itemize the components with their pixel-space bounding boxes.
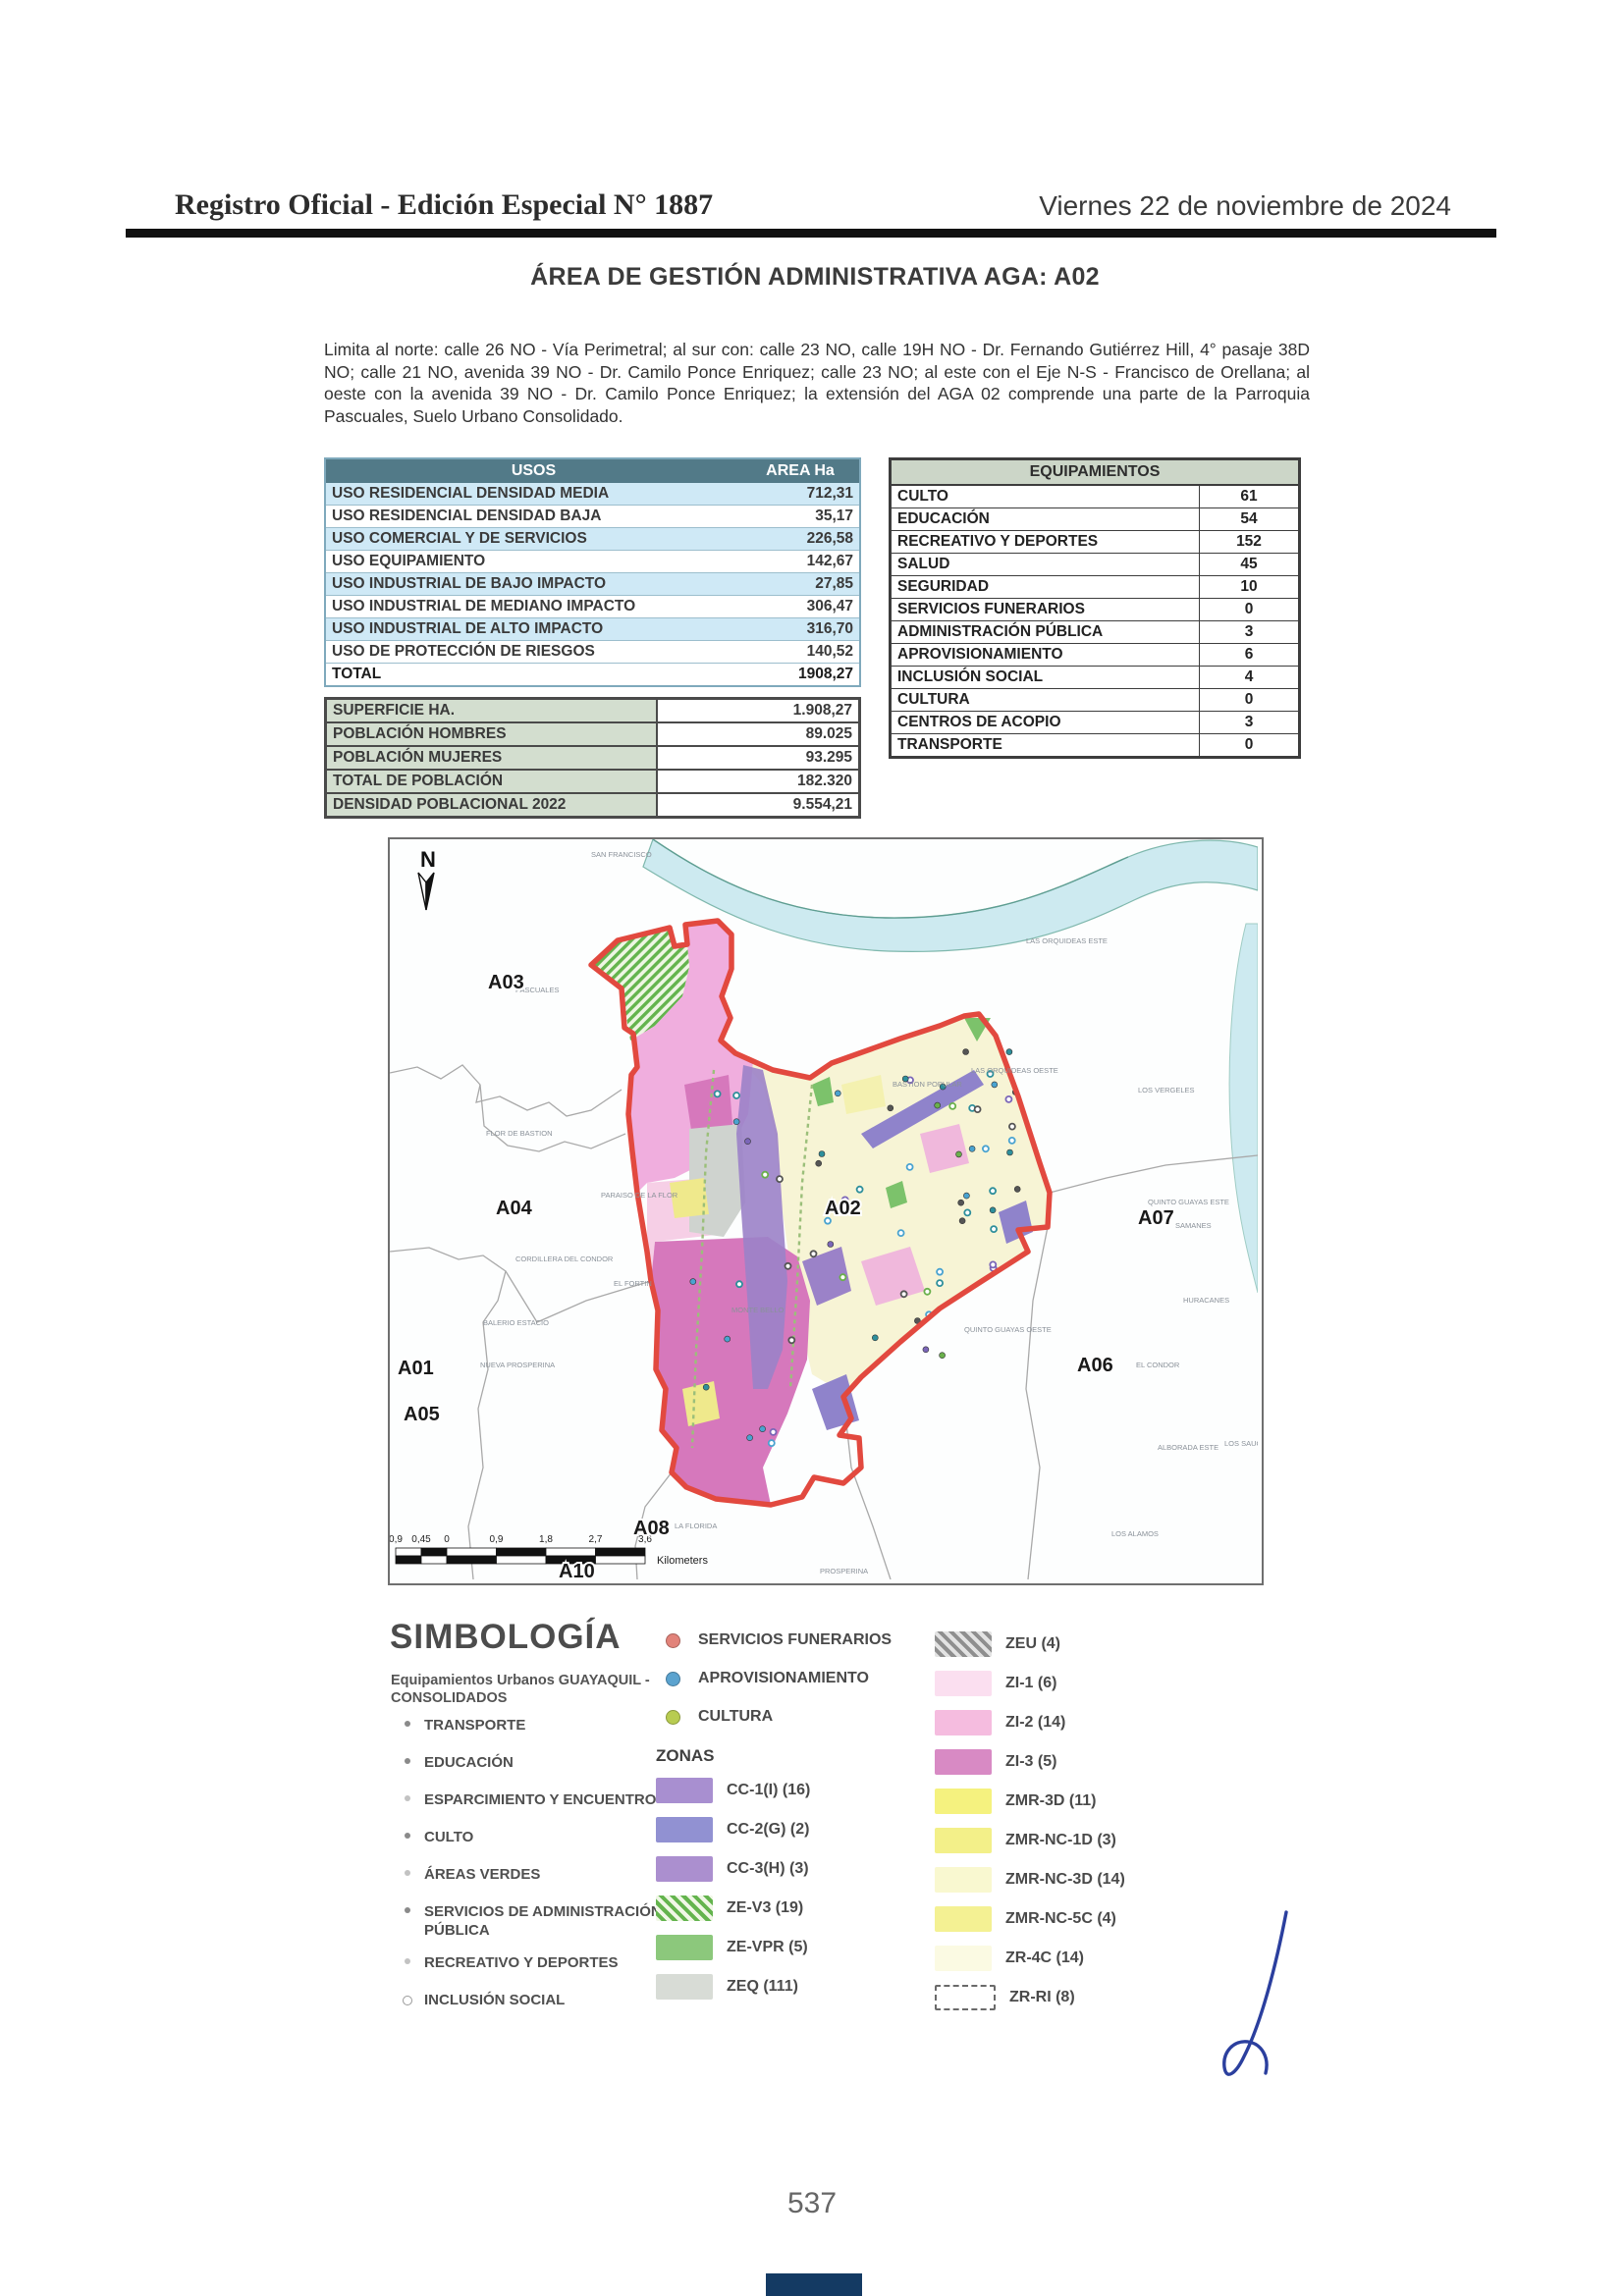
uso-value: 306,47 (741, 596, 860, 618)
table-row: EDUCACIÓN54 (891, 508, 1300, 531)
esparcimiento-y-encuentro-icon (391, 1790, 424, 1801)
equipment-dot (935, 1102, 941, 1108)
resumen-label: POBLACIÓN MUJERES (326, 746, 657, 770)
usos-total-row: TOTAL1908,27 (325, 664, 860, 687)
place-label: LOS VERGELES (1138, 1086, 1195, 1095)
place-label: LAS ORQUIDEAS ESTE (1026, 936, 1108, 945)
legend-zona-item: ZR-RI (8) (935, 1985, 1249, 2010)
equipment-dot (736, 1281, 742, 1287)
legend-zona-item: CC-3(H) (3) (656, 1856, 950, 1882)
equipment-dot (745, 1139, 751, 1145)
equip-value: 54 (1200, 508, 1300, 531)
equipment-dot (901, 1291, 907, 1297)
equip-label: CENTROS DE ACOPIO (891, 712, 1200, 734)
place-label: QUINTO GUAYAS OESTE (964, 1325, 1052, 1334)
culto-icon (391, 1828, 424, 1839)
equipment-dot (703, 1384, 709, 1390)
equipment-dot (760, 1426, 766, 1432)
legend-zona-item: ZMR-NC-1D (3) (935, 1828, 1249, 1853)
table-row: SERVICIOS FUNERARIOS0 (891, 599, 1300, 621)
place-label: PARAISO DE LA FLOR (601, 1191, 678, 1200)
table-row: CULTO61 (891, 485, 1300, 508)
equipment-dot (1006, 1049, 1012, 1055)
equipment-dot (992, 1082, 998, 1088)
equip-label: APROVISIONAMIENTO (891, 644, 1200, 667)
resumen-value: 93.295 (657, 746, 860, 770)
equipment-dot (990, 1261, 996, 1267)
legend-label: ZI-2 (14) (1005, 1714, 1065, 1732)
equip-label: ADMINISTRACIÓN PÚBLICA (891, 621, 1200, 644)
legend-zonas-header: ZONAS (656, 1746, 950, 1766)
aga-zone-label: A06 (1077, 1355, 1113, 1376)
table-row: ADMINISTRACIÓN PÚBLICA3 (891, 621, 1300, 644)
legend-equip-item: ÁREAS VERDES (391, 1865, 685, 1889)
zona-swatch (935, 1906, 992, 1932)
aga-zone-label: A04 (496, 1198, 533, 1219)
zona-swatch (656, 1856, 713, 1882)
equipment-dot (898, 1230, 904, 1236)
uso-value: 712,31 (741, 483, 860, 506)
table-row: USO DE PROTECCIÓN DE RIESGOS140,52 (325, 641, 860, 664)
zona-swatch (656, 1896, 713, 1921)
resumen-value: 89.025 (657, 722, 860, 746)
point-marker-icon (666, 1633, 680, 1648)
legend-title: SIMBOLOGÍA (390, 1618, 622, 1657)
table-row: POBLACIÓN HOMBRES89.025 (326, 722, 860, 746)
equip-value: 6 (1200, 644, 1300, 667)
equipment-dot (816, 1160, 822, 1166)
inclusi-n-social-icon (391, 1991, 424, 2005)
equipment-dot (811, 1251, 817, 1256)
equip-label: TRANSPORTE (891, 734, 1200, 758)
equipment-dot (1007, 1149, 1013, 1155)
zona-swatch (935, 1946, 992, 1971)
legend-label: TRANSPORTE (424, 1716, 525, 1735)
legend-label: INCLUSIÓN SOCIAL (424, 1991, 565, 2009)
servicios-de-administraci-n-p-blica-icon (391, 1902, 424, 1913)
uso-value: 316,70 (741, 618, 860, 641)
legend-label: ZMR-NC-1D (3) (1005, 1832, 1116, 1849)
uso-label: USO RESIDENCIAL DENSIDAD BAJA (325, 506, 741, 528)
equipment-dot (715, 1091, 721, 1096)
equip-label: CULTO (891, 485, 1200, 508)
equipment-dot (990, 1188, 996, 1194)
uso-value: 27,85 (741, 573, 860, 596)
scale-tick: 0,9 (490, 1534, 504, 1545)
legend-equip-item: RECREATIVO Y DEPORTES (391, 1953, 685, 1977)
uso-value: 226,58 (741, 528, 860, 551)
uso-label: USO EQUIPAMIENTO (325, 551, 741, 573)
place-label: FLOR DE BASTION (486, 1129, 553, 1138)
legend-label: ZE-VPR (5) (727, 1939, 808, 1956)
zona-swatch (935, 1749, 992, 1775)
legend-zona-item: ZEU (4) (935, 1631, 1249, 1657)
equipment-dot (923, 1347, 929, 1353)
table-row: SALUD45 (891, 554, 1300, 576)
equip-value: 3 (1200, 621, 1300, 644)
equipment-dot (762, 1172, 768, 1178)
legend-zona-item: ZEQ (111) (656, 1974, 950, 2000)
equipment-dot (963, 1193, 969, 1199)
legend-zona-item: ZE-V3 (19) (656, 1896, 950, 1921)
zone-a02 (591, 921, 1050, 1505)
equipment-dot (733, 1093, 739, 1098)
table-row: USO RESIDENCIAL DENSIDAD MEDIA712,31 (325, 483, 860, 506)
equipment-dot (690, 1279, 696, 1285)
equipment-dot (990, 1207, 996, 1213)
equipment-dot (991, 1226, 997, 1232)
legend-label: ZI-3 (5) (1005, 1753, 1056, 1771)
equipment-dot (839, 1274, 845, 1280)
legend-zona-item: ZR-4C (14) (935, 1946, 1249, 1971)
legend-zona-item: ZMR-NC-5C (4) (935, 1906, 1249, 1932)
zona-swatch (656, 1935, 713, 1960)
resumen-label: TOTAL DE POBLACIÓN (326, 770, 657, 793)
legend-zona-item: ZE-VPR (5) (656, 1935, 950, 1960)
legend-equip-item: SERVICIOS DE ADMINISTRACIÓN PÚBLICA (391, 1902, 685, 1940)
equip-label: SERVICIOS FUNERARIOS (891, 599, 1200, 621)
scale-unit: Kilometers (657, 1555, 708, 1567)
equipamientos-header: EQUIPAMIENTOS (891, 459, 1300, 486)
legend-label: ZMR-NC-5C (4) (1005, 1910, 1116, 1928)
legend-equip-column: TRANSPORTEEDUCACIÓNESPARCIMIENTO Y ENCUE… (391, 1716, 685, 2028)
legend-subtitle: Equipamientos Urbanos GUAYAQUIL - CONSOL… (391, 1672, 685, 1707)
legend-label: ZE-V3 (19) (727, 1899, 803, 1917)
equipment-dot (937, 1280, 943, 1286)
transporte-icon (391, 1716, 424, 1727)
place-label: LA FLORIDA (675, 1522, 717, 1530)
table-row: DENSIDAD POBLACIONAL 20229.554,21 (326, 793, 860, 818)
footer-navy-block (766, 2273, 862, 2296)
legend-zona-item: ZMR-NC-3D (14) (935, 1867, 1249, 1893)
resumen-value: 9.554,21 (657, 793, 860, 818)
scale-tick: 0 (444, 1534, 450, 1545)
aga-map-svg: N 0,90,4500,91,82,73,6Kilometers SAN FRA… (390, 839, 1258, 1579)
place-label: LAS ORQUIDEAS OESTE (971, 1066, 1058, 1075)
equip-label: EDUCACIÓN (891, 508, 1200, 531)
place-label: LOS SAUCES (1224, 1439, 1258, 1448)
legend-label: ZR-4C (14) (1005, 1949, 1084, 1967)
scale-tick: 0,45 (411, 1534, 431, 1545)
equip-label: SEGURIDAD (891, 576, 1200, 599)
place-label: SAMANES (1175, 1221, 1212, 1230)
equipment-dot (1005, 1096, 1011, 1102)
place-label: BASTION POPULAR (893, 1080, 962, 1089)
table-row: USO INDUSTRIAL DE BAJO IMPACTO27,85 (325, 573, 860, 596)
usos-header-usos: USOS (325, 458, 741, 483)
legend-point-item: CULTURA (656, 1708, 950, 1726)
table-row: CULTURA0 (891, 689, 1300, 712)
legend-zona-item: ZI-2 (14) (935, 1710, 1249, 1735)
uso-label: USO INDUSTRIAL DE BAJO IMPACTO (325, 573, 741, 596)
svg-text:N: N (420, 847, 436, 872)
equipment-dot (769, 1440, 775, 1446)
equipment-dot (964, 1209, 970, 1215)
zona-swatch (935, 1867, 992, 1893)
usos-table: USOS AREA Ha USO RESIDENCIAL DENSIDAD ME… (324, 457, 861, 687)
equipamientos-table: EQUIPAMIENTOS CULTO61EDUCACIÓN54RECREATI… (889, 457, 1301, 759)
legend-zona-item: CC-1(I) (16) (656, 1778, 950, 1803)
equip-value: 61 (1200, 485, 1300, 508)
table-row: SEGURIDAD10 (891, 576, 1300, 599)
legend-zona-item: ZMR-3D (11) (935, 1789, 1249, 1814)
equipment-dot (785, 1263, 791, 1269)
equip-value: 0 (1200, 689, 1300, 712)
-reas-verdes-icon (391, 1865, 424, 1876)
legend-zona-item: ZI-3 (5) (935, 1749, 1249, 1775)
table-row: INCLUSIÓN SOCIAL4 (891, 667, 1300, 689)
uso-label: USO COMERCIAL Y DE SERVICIOS (325, 528, 741, 551)
equipment-dot (963, 1049, 969, 1055)
aga-zone-label: A02 (825, 1198, 861, 1219)
equipment-dot (956, 1151, 962, 1157)
place-label: QUINTO GUAYAS ESTE (1148, 1198, 1229, 1206)
place-label: CORDILLERA DEL CONDOR (515, 1255, 614, 1263)
equipment-dot (888, 1105, 893, 1111)
legend-label: ZEU (4) (1005, 1635, 1060, 1653)
place-label: EL CONDOR (1136, 1361, 1180, 1369)
total-value: 1908,27 (741, 664, 860, 687)
legend-label: CC-3(H) (3) (727, 1860, 809, 1878)
equipment-dot (983, 1146, 989, 1151)
equipment-dot (949, 1103, 955, 1109)
legend-equip-item: EDUCACIÓN (391, 1753, 685, 1777)
equipment-dot (828, 1242, 834, 1248)
equipment-dot (924, 1289, 930, 1295)
uso-value: 140,52 (741, 641, 860, 664)
legend-zona-item: CC-2(G) (2) (656, 1817, 950, 1842)
point-marker-icon (666, 1672, 680, 1686)
educaci-n-icon (391, 1753, 424, 1764)
zona-swatch (935, 1631, 992, 1657)
legend-label: ZR-RI (8) (1009, 1989, 1075, 2006)
equipment-dot (958, 1200, 964, 1205)
equipment-dot (1009, 1138, 1015, 1144)
equipment-dot (1009, 1124, 1015, 1130)
uso-value: 142,67 (741, 551, 860, 573)
zona-swatch (935, 1789, 992, 1814)
equipamientos-table-body: CULTO61EDUCACIÓN54RECREATIVO Y DEPORTES1… (891, 485, 1300, 758)
point-marker-icon (666, 1710, 680, 1725)
total-label: TOTAL (325, 664, 741, 687)
aga-zone-label: A05 (404, 1404, 440, 1425)
legend-label: CULTO (424, 1828, 473, 1846)
place-label: LOS ALAMOS (1111, 1529, 1159, 1538)
header-publication-title: Registro Oficial - Edición Especial N° 1… (175, 188, 713, 222)
resumen-table: SUPERFICIE HA.1.908,27POBLACIÓN HOMBRES8… (324, 697, 861, 819)
table-row: USO RESIDENCIAL DENSIDAD BAJA35,17 (325, 506, 860, 528)
equip-value: 0 (1200, 599, 1300, 621)
legend-points-column: SERVICIOS FUNERARIOSAPROVISIONAMIENTOCUL… (656, 1631, 950, 2013)
equip-value: 45 (1200, 554, 1300, 576)
legend-label: APROVISIONAMIENTO (698, 1670, 869, 1687)
table-row: TOTAL DE POBLACIÓN182.320 (326, 770, 860, 793)
uso-label: USO INDUSTRIAL DE MEDIANO IMPACTO (325, 596, 741, 618)
aga-zone-label: A08 (633, 1518, 670, 1539)
legend-label: ZEQ (111) (727, 1978, 798, 1996)
place-label: MONTE BELLO (731, 1306, 785, 1314)
legend-label: EDUCACIÓN (424, 1753, 514, 1772)
legend-label: SERVICIOS DE ADMINISTRACIÓN PÚBLICA (424, 1902, 685, 1940)
aga-zone-label: A03 (488, 972, 524, 993)
equipment-dot (872, 1335, 878, 1341)
uso-label: USO DE PROTECCIÓN DE RIESGOS (325, 641, 741, 664)
equipment-dot (835, 1091, 840, 1096)
zona-swatch (656, 1974, 713, 2000)
equip-value: 152 (1200, 531, 1300, 554)
intro-paragraph: Limita al norte: calle 26 NO - Vía Perim… (324, 339, 1310, 427)
equip-value: 10 (1200, 576, 1300, 599)
table-row: USO INDUSTRIAL DE ALTO IMPACTO316,70 (325, 618, 860, 641)
zona-swatch (935, 1985, 996, 2010)
equipment-dot (969, 1146, 975, 1151)
resumen-label: POBLACIÓN HOMBRES (326, 722, 657, 746)
legend-label: CC-2(G) (2) (727, 1821, 809, 1839)
usos-header-area: AREA Ha (741, 458, 860, 483)
usos-table-body: USO RESIDENCIAL DENSIDAD MEDIA712,31USO … (325, 483, 860, 686)
table-row: CENTROS DE ACOPIO3 (891, 712, 1300, 734)
legend-label: CULTURA (698, 1708, 773, 1726)
equipment-dot (975, 1106, 981, 1112)
place-label: EL FORTIN (614, 1279, 652, 1288)
legend-point-item: APROVISIONAMIENTO (656, 1670, 950, 1687)
equipment-dot (959, 1218, 965, 1224)
aga-zone-label: A07 (1138, 1207, 1174, 1229)
equipment-dot (937, 1269, 943, 1275)
equipment-dot (857, 1187, 863, 1193)
legend-equip-item: TRANSPORTE (391, 1716, 685, 1739)
equip-label: RECREATIVO Y DEPORTES (891, 531, 1200, 554)
equip-label: SALUD (891, 554, 1200, 576)
document-page: Registro Oficial - Edición Especial N° 1… (0, 0, 1624, 2296)
equip-value: 0 (1200, 734, 1300, 758)
uso-value: 35,17 (741, 506, 860, 528)
zona-swatch (656, 1778, 713, 1803)
north-arrow: N (418, 847, 436, 910)
scale-tick: 2,7 (589, 1534, 603, 1545)
equipment-dot (788, 1337, 794, 1343)
aga-map: N 0,90,4500,91,82,73,6Kilometers SAN FRA… (388, 837, 1264, 1585)
table-row: TRANSPORTE0 (891, 734, 1300, 758)
legend-label: ESPARCIMIENTO Y ENCUENTRO (424, 1790, 656, 1809)
zona-swatch (935, 1828, 992, 1853)
legend-point-item: SERVICIOS FUNERARIOS (656, 1631, 950, 1649)
legend-label: SERVICIOS FUNERARIOS (698, 1631, 892, 1649)
equipment-dot (777, 1176, 783, 1182)
legend-zona-item: ZI-1 (6) (935, 1671, 1249, 1696)
equip-value: 4 (1200, 667, 1300, 689)
resumen-label: DENSIDAD POBLACIONAL 2022 (326, 793, 657, 818)
legend-zonas-column2: ZEU (4)ZI-1 (6)ZI-2 (14)ZI-3 (5)ZMR-3D (… (935, 1631, 1249, 2024)
table-row: USO COMERCIAL Y DE SERVICIOS226,58 (325, 528, 860, 551)
legend-label: ZMR-NC-3D (14) (1005, 1871, 1125, 1889)
legend-label: ÁREAS VERDES (424, 1865, 540, 1884)
legend-equip-item: INCLUSIÓN SOCIAL (391, 1991, 685, 2014)
scale-tick: 1,8 (539, 1534, 553, 1545)
resumen-label: SUPERFICIE HA. (326, 699, 657, 723)
zona-swatch (935, 1710, 992, 1735)
table-row: APROVISIONAMIENTO6 (891, 644, 1300, 667)
table-row: USO INDUSTRIAL DE MEDIANO IMPACTO306,47 (325, 596, 860, 618)
equipment-dot (725, 1336, 731, 1342)
place-label: NUEVA PROSPERINA (480, 1361, 555, 1369)
resumen-value: 182.320 (657, 770, 860, 793)
resumen-value: 1.908,27 (657, 699, 860, 723)
scale-tick: 0,9 (390, 1534, 403, 1545)
place-label: PROSPERINA (820, 1567, 868, 1575)
legend-label: CC-1(I) (16) (727, 1782, 810, 1799)
equipment-dot (819, 1151, 825, 1157)
zona-swatch (935, 1671, 992, 1696)
place-label: SAN FRANCISCO (591, 850, 652, 859)
table-row: RECREATIVO Y DEPORTES152 (891, 531, 1300, 554)
aga-zone-label: A01 (398, 1358, 434, 1379)
place-label: HURACANES (1183, 1296, 1229, 1305)
header-rule (126, 229, 1496, 238)
aga-zone-label: A10 (559, 1561, 595, 1579)
recreativo-y-deportes-icon (391, 1953, 424, 1964)
table-row: POBLACIÓN MUJERES93.295 (326, 746, 860, 770)
uso-label: USO RESIDENCIAL DENSIDAD MEDIA (325, 483, 741, 506)
equip-label: CULTURA (891, 689, 1200, 712)
equipment-dot (733, 1119, 739, 1125)
legend-label: ZMR-3D (11) (1005, 1792, 1096, 1810)
legend-equip-item: CULTO (391, 1828, 685, 1851)
place-label: BALERIO ESTACIO (483, 1318, 549, 1327)
equip-value: 3 (1200, 712, 1300, 734)
equipment-dot (1014, 1186, 1020, 1192)
legend-equip-item: ESPARCIMIENTO Y ENCUENTRO (391, 1790, 685, 1814)
legend-label: RECREATIVO Y DEPORTES (424, 1953, 619, 1972)
equip-label: INCLUSIÓN SOCIAL (891, 667, 1200, 689)
equipment-dot (771, 1429, 777, 1435)
page-number: 537 (0, 2187, 1624, 2220)
uso-label: USO INDUSTRIAL DE ALTO IMPACTO (325, 618, 741, 641)
equipment-dot (907, 1164, 913, 1170)
legend-label: ZI-1 (6) (1005, 1675, 1056, 1692)
resumen-table-body: SUPERFICIE HA.1.908,27POBLACIÓN HOMBRES8… (326, 699, 860, 818)
page-title: ÁREA DE GESTIÓN ADMINISTRATIVA AGA: A02 (324, 263, 1306, 292)
equipment-dot (747, 1435, 753, 1441)
header-date: Viernes 22 de noviembre de 2024 (1039, 190, 1451, 222)
zona-swatch (656, 1817, 713, 1842)
table-row: SUPERFICIE HA.1.908,27 (326, 699, 860, 723)
table-row: USO EQUIPAMIENTO142,67 (325, 551, 860, 573)
equipment-dot (940, 1353, 946, 1359)
place-label: ALBORADA ESTE (1158, 1443, 1218, 1452)
